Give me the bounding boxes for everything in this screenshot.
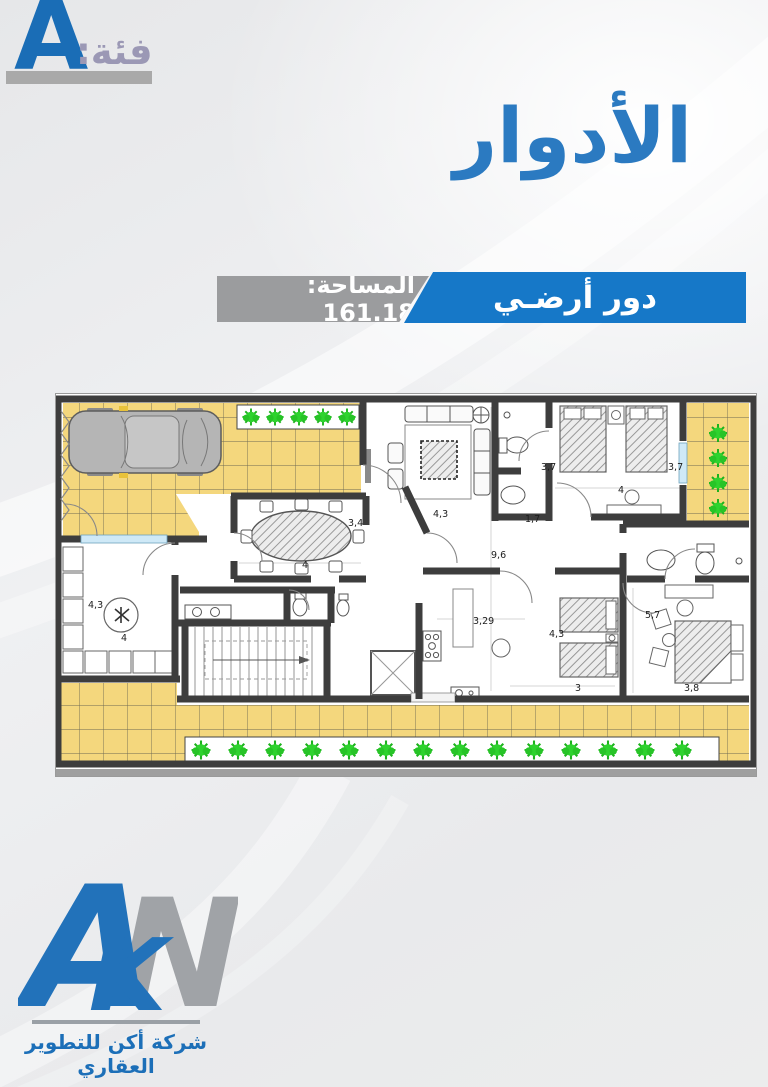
floor-name-badge: دور أرضـي <box>404 272 746 323</box>
dimension-label: 3,7 <box>668 462 683 473</box>
dimension-label: 3,8 <box>684 683 699 694</box>
dimension-label: 4 <box>302 560 308 571</box>
dimension-label: 4,3 <box>549 629 564 640</box>
category-label: فئة: <box>76 30 153 73</box>
dimension-label: 1,7 <box>525 514 540 525</box>
company-name: شركة أكن للتطوير العقاري <box>6 1030 226 1078</box>
dimension-label: 3,4 <box>348 518 363 529</box>
dimension-label: 3 <box>575 683 581 694</box>
dimension-label: 4 <box>618 485 624 496</box>
page-title: الأدوار <box>453 88 692 183</box>
company-logo: N A K شركة أكن للتطوير العقاري <box>18 858 252 1070</box>
brochure-page: A فئة: الأدوار المساحة: 161.18 دور أرضـي <box>0 0 768 1087</box>
shaft <box>371 651 415 695</box>
car-icon <box>69 406 221 478</box>
dimension-label: 5,7 <box>645 610 660 621</box>
dimension-label: 3,7 <box>541 462 556 473</box>
logo-divider <box>32 1020 200 1024</box>
sidewalk-strip <box>55 769 757 777</box>
dimension-label: 4,3 <box>433 509 448 520</box>
floor-plan: 3,444,39,63,71,73,744,343,294,335,73,8 <box>55 393 757 777</box>
logo-mark: N A K <box>18 858 238 1018</box>
area-badge: المساحة: 161.18 <box>217 276 429 322</box>
floor-plan-drawing: 3,444,39,63,71,73,744,343,294,335,73,8 <box>55 393 757 777</box>
floor-name-label: دور أرضـي <box>493 280 657 316</box>
dimension-label: 4,3 <box>88 600 103 611</box>
dimension-label: 4 <box>121 633 127 644</box>
dimension-label: 9,6 <box>491 550 506 561</box>
dimension-label: 3,29 <box>473 616 494 627</box>
area-label: المساحة: 161.18 <box>217 271 429 327</box>
category-underline <box>6 71 152 84</box>
